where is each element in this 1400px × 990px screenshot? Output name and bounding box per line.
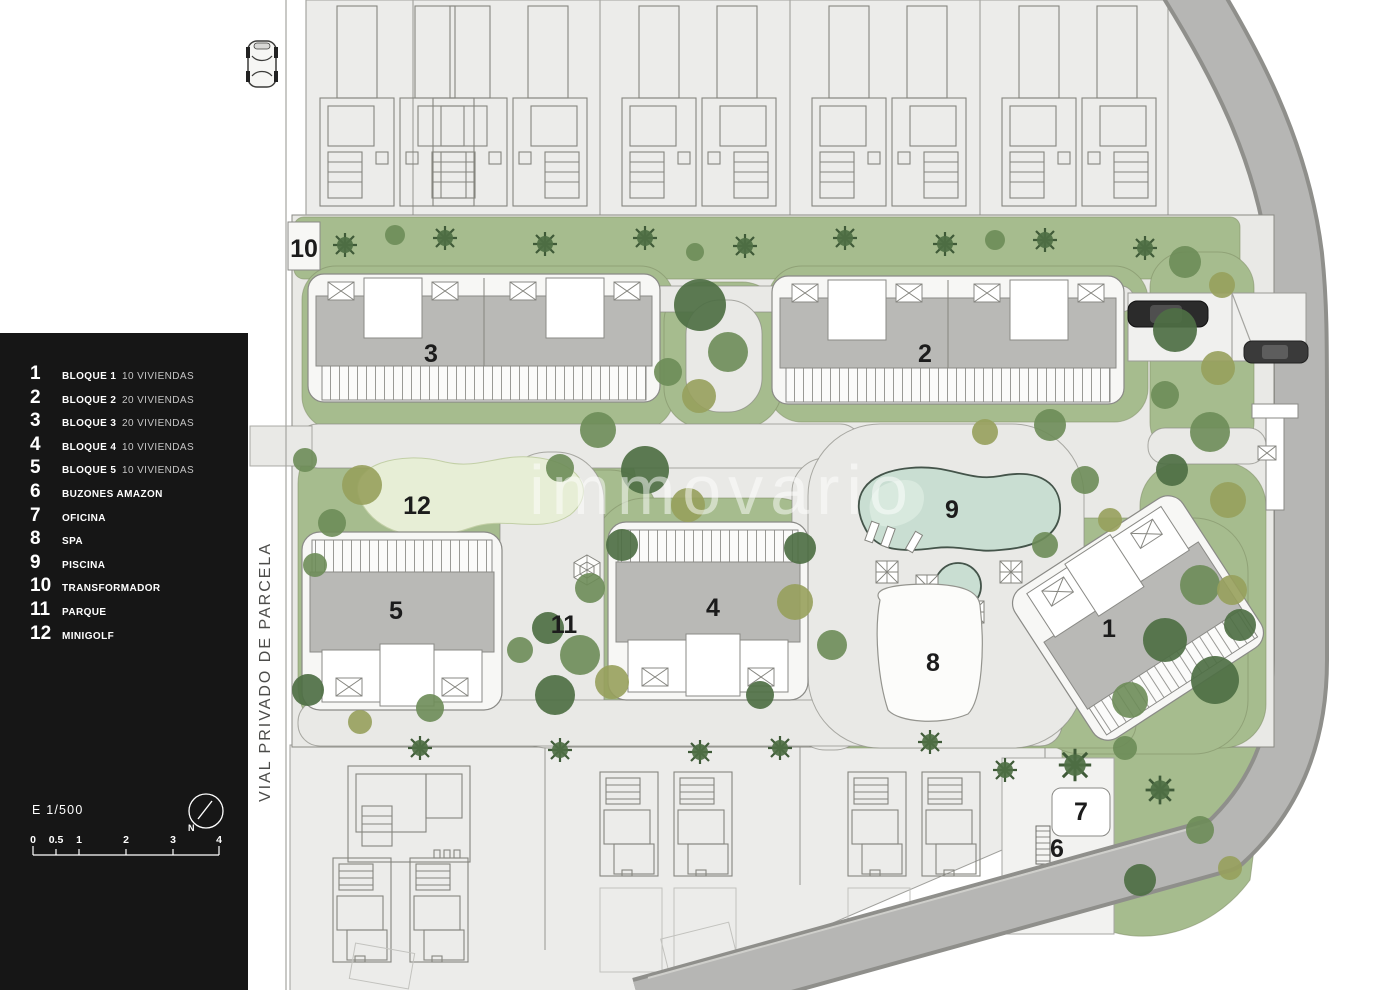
marker-block-1: 1 — [1102, 615, 1116, 643]
legend-item-parque: 11PARQUE — [30, 599, 248, 623]
car-icon — [1244, 341, 1308, 363]
legend-item-transformador: 10TRANSFORMADOR — [30, 575, 248, 599]
marker-buzones: 6 — [1050, 835, 1064, 863]
scale-tick-label: 4 — [216, 834, 222, 846]
marker-oficina: 7 — [1074, 798, 1088, 826]
scale-tick-label: 0.5 — [49, 834, 64, 846]
scale-tick-label: 3 — [170, 834, 176, 846]
legend-item-oficina: 7OFICINA — [30, 505, 248, 529]
parasol-icon — [876, 561, 898, 583]
watermark: immovario — [529, 451, 915, 529]
legend-item-bloque-4: 4BLOQUE 410 VIVIENDAS — [30, 434, 248, 458]
amazon-mailboxes — [1036, 826, 1050, 864]
legend-item-bloque-5: 5BLOQUE 510 VIVIENDAS — [30, 457, 248, 481]
marker-minigolf: 12 — [403, 492, 431, 520]
legend-item-minigolf: 12MINIGOLF — [30, 623, 248, 647]
legend-item-buzones: 6BUZONES AMAZON — [30, 481, 248, 505]
scale-tick-label: 2 — [123, 834, 129, 846]
marker-block-4: 4 — [706, 594, 720, 622]
scale-tick-label: 1 — [76, 834, 82, 846]
legend-item-piscina: 9PISCINA — [30, 552, 248, 576]
legend-item-bloque-3: 3BLOQUE 320 VIVIENDAS — [30, 410, 248, 434]
legend-item-spa: 8SPA — [30, 528, 248, 552]
legend-item-bloque-2: 2BLOQUE 220 VIVIENDAS — [30, 387, 248, 411]
legend-list: 1BLOQUE 110 VIVIENDAS 2BLOQUE 220 VIVIEN… — [0, 333, 248, 646]
north-label: N — [188, 823, 195, 833]
building-block-3 — [308, 274, 660, 402]
legend-item-bloque-1: 1BLOQUE 110 VIVIENDAS — [30, 363, 248, 387]
marker-block-2: 2 — [918, 340, 932, 368]
legend-panel: 1BLOQUE 110 VIVIENDAS 2BLOQUE 220 VIVIEN… — [0, 333, 248, 990]
marker-block-3: 3 — [424, 340, 438, 368]
marker-piscina: 9 — [945, 496, 959, 524]
scale-label: E 1/500 — [32, 803, 84, 817]
scale-bar: 0 0.5 1 2 3 4 — [26, 833, 226, 867]
marker-block-5: 5 — [389, 597, 403, 625]
marker-spa: 8 — [926, 649, 940, 677]
parasol-icon — [1000, 561, 1022, 583]
site-plan-page: VIAL PRIVADO DE PARCELA 3 2 12 5 4 11 9 … — [0, 0, 1400, 990]
top-houses-band — [306, 0, 1268, 215]
road-label: VIAL PRIVADO DE PARCELA — [257, 542, 274, 802]
marker-parque: 11 — [551, 611, 578, 639]
marker-transformador: 10 — [290, 235, 318, 263]
car-icon — [246, 41, 278, 87]
scale-tick-label: 0 — [30, 834, 36, 846]
building-block-2 — [772, 276, 1124, 404]
